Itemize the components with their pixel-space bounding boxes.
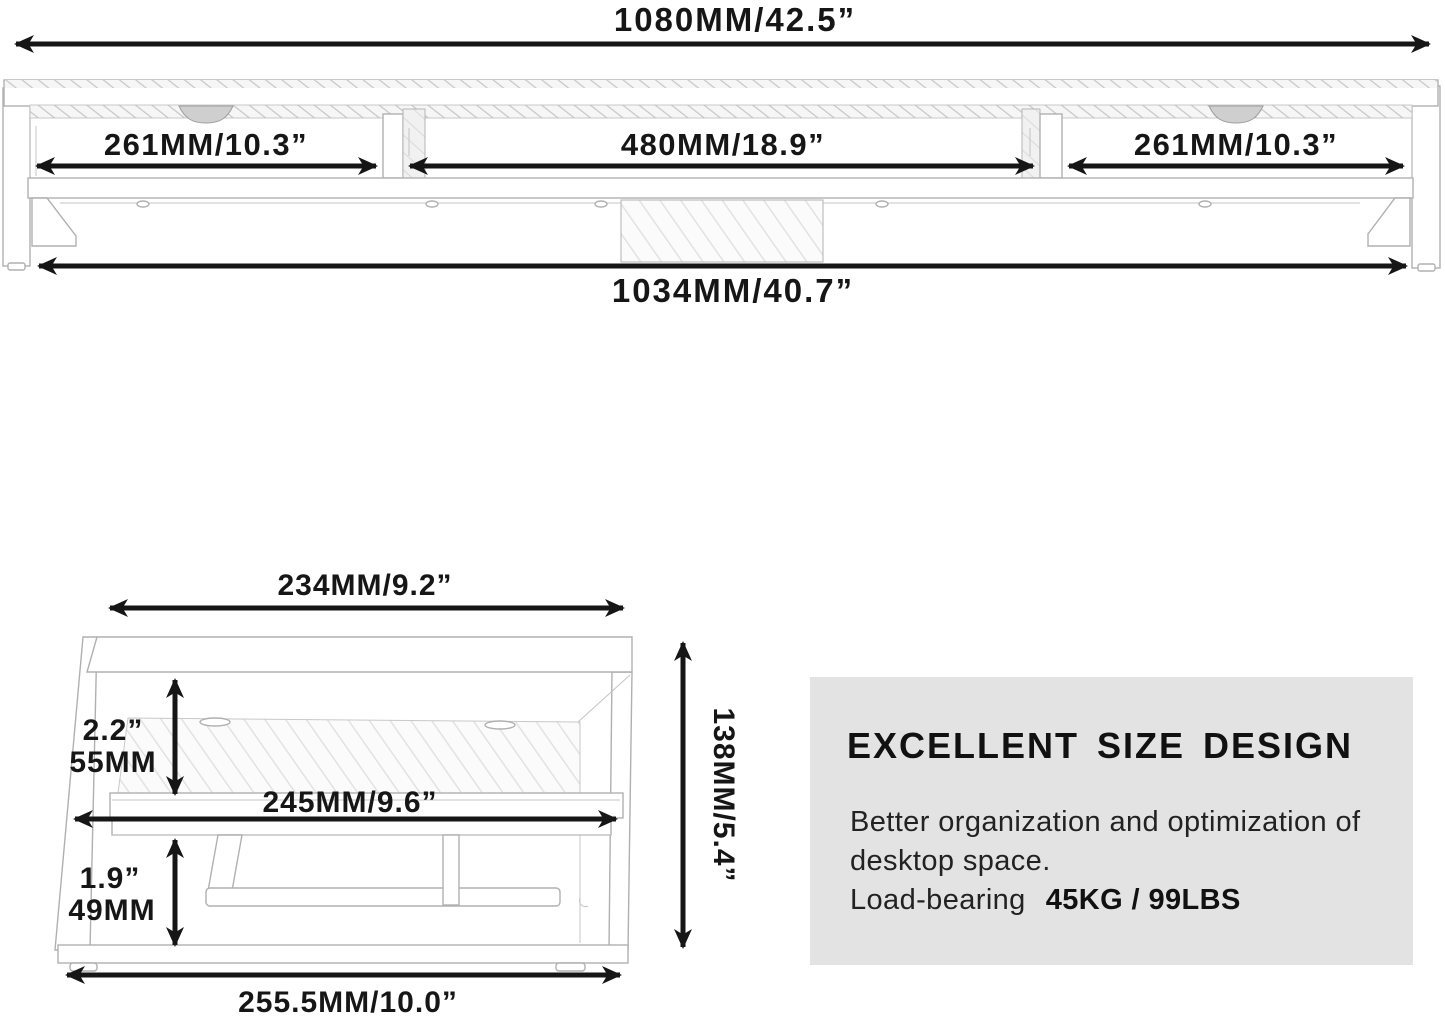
info-panel-body: Better organization and optimization of … [850, 803, 1361, 920]
dimension-label-inner-width: 1034MM/40.7” [612, 272, 854, 309]
side-view-diagram: 234MM/9.2” 2.2” 55MM 245MM/9.6” 1.9” 49M… [0, 550, 760, 1019]
dimension-label-lower-clearance-in: 1.9” [80, 862, 141, 895]
product-dimension-sheet: 1080MM/42.5” 261MM/10.3” 480MM/18.9” 261… [0, 0, 1445, 1019]
side-bottom-board [58, 945, 628, 963]
left-inner-bracket [32, 198, 76, 246]
dimension-label-top-depth: 234MM/9.2” [277, 569, 452, 602]
dimension-label-right-compartment: 261MM/10.3” [1134, 127, 1338, 162]
stand-front-structure [3, 80, 1440, 271]
dimension-label-base-depth: 255.5MM/10.0” [238, 986, 458, 1019]
info-line-2: desktop space. [850, 842, 1361, 881]
right-foot [1418, 264, 1435, 271]
front-view-dimensions: 1080MM/42.5” 261MM/10.3” 480MM/18.9” 261… [16, 1, 1429, 309]
screw-mark [1199, 201, 1211, 207]
dimension-label-shelf-depth: 245MM/9.6” [262, 786, 437, 819]
top-board-underside [30, 105, 1412, 118]
dimension-label-upper-clearance-in: 2.2” [83, 714, 144, 747]
right-inner-bracket [1368, 198, 1410, 246]
inner-notch [579, 898, 588, 907]
left-leg-panel [3, 88, 30, 266]
dimension-label-upper-clearance-mm: 55MM [69, 746, 156, 779]
inner-center-post [443, 835, 459, 905]
dimension-label-lower-clearance-mm: 49MM [68, 894, 155, 927]
dimension-label-overall-height: 138MM/5.4” [707, 707, 740, 882]
inner-rail [206, 888, 560, 906]
side-right-foot [556, 963, 585, 971]
info-panel-heading: EXCELLENT SIZE DESIGN [847, 725, 1353, 767]
load-bearing-value: 45KG / 99LBS [1046, 884, 1241, 916]
side-underside-surface [118, 718, 580, 793]
info-line-1: Better organization and optimization of [850, 803, 1361, 842]
front-view-diagram: 1080MM/42.5” 261MM/10.3” 480MM/18.9” 261… [0, 0, 1445, 320]
divider-left-post [383, 114, 403, 178]
left-foot [8, 263, 25, 270]
cable-notch-left [179, 106, 233, 123]
side-left-foot [70, 963, 97, 971]
screw-mark [595, 201, 607, 207]
right-leg-panel [1412, 86, 1440, 268]
screw-hole [485, 721, 515, 729]
dimension-label-left-compartment: 261MM/10.3” [104, 127, 308, 162]
cable-notch-right [1209, 106, 1263, 123]
side-top-board [87, 637, 632, 672]
screw-mark [426, 201, 438, 207]
bottom-board [28, 178, 1413, 198]
dimension-label-overall-width: 1080MM/42.5” [614, 1, 856, 38]
dimension-label-center-compartment: 480MM/18.9” [621, 127, 825, 162]
size-design-info-panel: EXCELLENT SIZE DESIGN Better organizatio… [810, 677, 1413, 965]
screw-mark [137, 201, 149, 207]
screw-hole [200, 718, 230, 726]
info-line-3: Load-bearing45KG / 99LBS [850, 881, 1361, 920]
divider-right-post [1040, 114, 1062, 178]
screw-mark [876, 201, 888, 207]
top-board-back-edge [5, 80, 1437, 88]
load-bearing-label: Load-bearing [850, 884, 1026, 916]
center-support-block [621, 200, 823, 262]
